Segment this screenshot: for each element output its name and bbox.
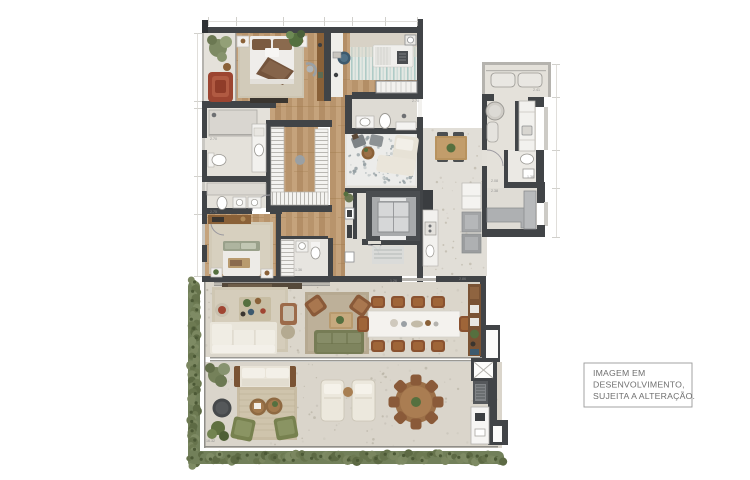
svg-text:1.26: 1.26 — [390, 279, 397, 283]
svg-text:1.36: 1.36 — [295, 268, 302, 272]
svg-text:2.70: 2.70 — [210, 137, 217, 141]
svg-text:SUJEITA A ALTERAÇÃO.: SUJEITA A ALTERAÇÃO. — [593, 391, 695, 401]
svg-text:16.32: 16.32 — [206, 439, 215, 443]
svg-text:2.75: 2.75 — [210, 210, 217, 214]
svg-text:IMAGEM EM: IMAGEM EM — [593, 368, 645, 378]
svg-text:2.41: 2.41 — [533, 88, 540, 92]
svg-text:2.38: 2.38 — [491, 189, 498, 193]
svg-text:2.08: 2.08 — [491, 179, 498, 183]
svg-text:2.70: 2.70 — [412, 99, 419, 103]
svg-text:1.36: 1.36 — [527, 175, 534, 179]
svg-text:DESENVOLVIMENTO,: DESENVOLVIMENTO, — [593, 380, 685, 390]
svg-text:2.86: 2.86 — [459, 277, 466, 281]
